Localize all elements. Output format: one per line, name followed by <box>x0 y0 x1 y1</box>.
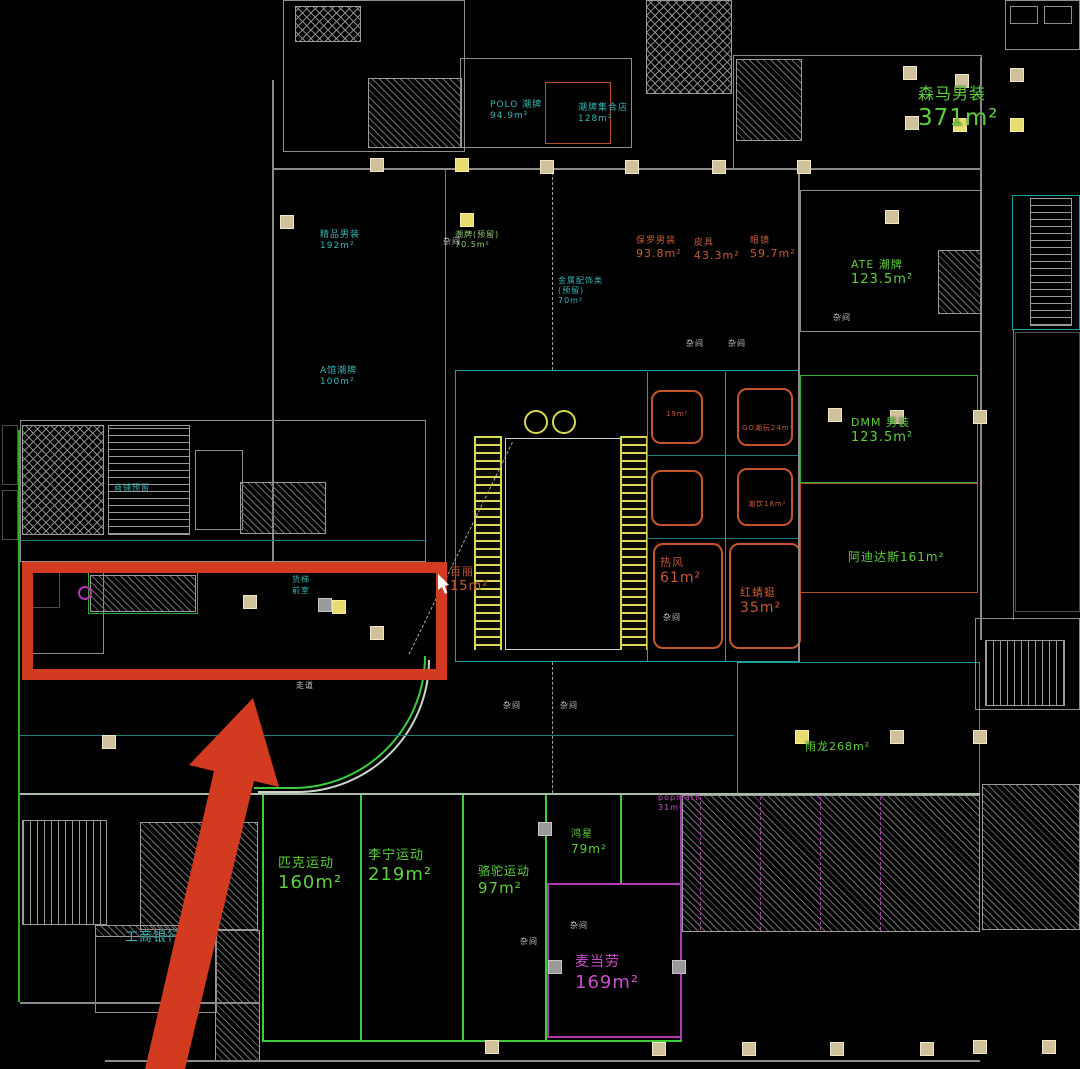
wall-outline <box>283 0 465 152</box>
escalator <box>474 436 502 650</box>
corridor-line <box>20 735 734 736</box>
store-label-text: 123.5m² <box>851 430 913 446</box>
column-marker <box>920 1042 934 1056</box>
wall-outline-cyan <box>1012 195 1080 330</box>
kiosk-outline <box>651 390 703 444</box>
store-label-yanjing: 眼镜59.7m² <box>750 236 796 261</box>
store-label-text: POLO 潮牌 <box>490 100 542 111</box>
wall-outline <box>460 58 632 148</box>
wall-outline <box>2 425 18 485</box>
column-marker <box>102 735 116 749</box>
store-label-kiosk3: 潮饮18m² <box>748 500 787 509</box>
store-label-text: 阿迪达斯161m² <box>848 550 944 565</box>
kiosk-outline <box>651 470 703 526</box>
store-label-dmm: DMM 男装123.5m² <box>851 416 913 446</box>
store-label-text: 219m² <box>368 864 432 887</box>
store-label-text: 31m² <box>658 803 699 813</box>
column-marker <box>903 66 917 80</box>
store-label-text: 19m² <box>666 410 689 419</box>
store-label-text: 160m² <box>278 872 342 895</box>
store-label-text: 97m² <box>478 879 530 898</box>
hatched-block <box>982 784 1080 930</box>
store-label-baili: 百丽15m² <box>450 565 488 595</box>
stair-core <box>1030 198 1072 326</box>
column-marker <box>905 116 919 130</box>
store-label-text: 百丽 <box>450 565 488 579</box>
wall-line-cyan <box>1013 330 1014 620</box>
store-label-senma: 森马男装371m² <box>918 84 999 133</box>
store-label-luotuo: 骆驼运动97m² <box>478 864 530 898</box>
store-label-text: GO潮玩24m² <box>742 424 793 433</box>
store-label-hongxing: 鸿星79m² <box>571 829 607 857</box>
store-label-text: 79m² <box>571 842 607 857</box>
store-label-text: 94.9m² <box>490 111 542 122</box>
kiosk-outline <box>737 388 793 446</box>
column-marker <box>540 160 554 174</box>
hatched-block <box>140 822 258 930</box>
kiosk-outline <box>737 468 793 526</box>
room-label: 杂间 <box>686 338 704 349</box>
column-marker <box>1042 1040 1056 1054</box>
hatched-block <box>682 795 980 932</box>
wall-outline-cyan <box>455 370 800 662</box>
store-label-text: 红蜻蜓 <box>740 586 781 600</box>
store-label-text: 眼镜 <box>750 236 796 247</box>
store-label-text: 123.5m² <box>851 272 913 288</box>
room-label: 杂间 <box>570 920 588 931</box>
store-label-text: 59.7m² <box>750 247 796 261</box>
store-label-lining: 李宁运动219m² <box>368 848 432 887</box>
store-label-text: DMM 男装 <box>851 416 913 430</box>
store-label-text: 骆驼运动 <box>478 864 530 879</box>
room-label: 杂间 <box>443 236 461 247</box>
wall-outline-cyan <box>737 662 980 795</box>
hatched-block <box>95 925 217 937</box>
store-label-baoluo: 保罗男装93.8m² <box>636 236 682 261</box>
store-label-ate: ATE 潮牌123.5m² <box>851 258 913 288</box>
hatched-block <box>368 78 462 148</box>
store-label-text: 金属配饰类 <box>558 276 603 286</box>
wall-outline <box>1044 6 1072 24</box>
room-label: 杂间 <box>520 936 538 947</box>
floor-plan-canvas: 森马男装371m²POLO 潮牌94.9m²潮牌集合店128m²精品男装192m… <box>0 0 1080 1069</box>
store-label-popmart: popmart31m² <box>658 793 699 813</box>
store-label-text: 精品男装 <box>320 230 360 241</box>
atrium-void <box>505 438 623 650</box>
store-label-text: 工商银行 <box>125 930 181 946</box>
wall-line <box>272 80 274 564</box>
boh-line-dashed <box>880 797 881 930</box>
store-label-text: (预留) <box>558 286 603 296</box>
store-label-jinshu: 金属配饰类(预留)70m² <box>558 276 603 306</box>
boundary-line-green <box>18 430 20 1002</box>
store-label-pike: 匹克运动160m² <box>278 856 342 895</box>
store-label-text: 371m² <box>918 104 999 133</box>
stair-core <box>108 425 190 535</box>
store-label-text: 35m² <box>740 600 781 618</box>
column-marker <box>742 1042 756 1056</box>
corridor-line <box>648 455 800 456</box>
store-label-kiosk2: GO潮玩24m² <box>742 424 793 433</box>
tenant-boundary-orange <box>800 483 978 593</box>
column-marker <box>712 160 726 174</box>
wall-line <box>798 170 800 662</box>
fountain-circle <box>552 410 576 434</box>
tenant-line-green <box>462 795 464 1042</box>
wall-outline <box>800 190 982 332</box>
hatched-block <box>736 59 802 141</box>
wall-outline <box>975 618 1080 710</box>
store-label-text: 麦当劳 <box>575 954 639 972</box>
highlight-arrow <box>0 0 1080 1069</box>
column-marker <box>973 730 987 744</box>
room-label: 商铺预留 <box>114 482 150 493</box>
tenant-line-magenta <box>680 795 682 1040</box>
column-marker <box>485 1040 499 1054</box>
store-label-text: 70.5m² <box>455 240 499 250</box>
wall-line <box>272 168 982 170</box>
tenant-line-green <box>620 795 622 885</box>
room-label: 杂间 <box>833 312 851 323</box>
column-marker <box>953 118 967 132</box>
column-marker <box>460 213 474 227</box>
column-marker <box>455 158 469 172</box>
store-label-text: 潮牌(预留) <box>455 230 499 240</box>
fountain-circle <box>524 410 548 434</box>
column-marker <box>672 960 686 974</box>
store-label-text: 61m² <box>660 570 701 588</box>
centerline-dashed <box>552 662 553 793</box>
boundary-line <box>20 793 980 795</box>
tenant-line-green <box>262 795 264 1042</box>
column-marker <box>548 960 562 974</box>
stair-core <box>22 820 107 925</box>
room-label: 杂间 <box>728 338 746 349</box>
column-marker <box>955 74 969 88</box>
store-label-kiosk1: 19m² <box>666 410 689 419</box>
wall-outline <box>1010 6 1038 24</box>
store-label-text: 皮具 <box>694 238 740 249</box>
tenant-boundary-green <box>800 375 978 483</box>
wall-line <box>980 57 982 640</box>
centerline-dashed <box>552 172 553 370</box>
store-label-text: 潮饮18m² <box>748 500 787 509</box>
column-marker <box>370 158 384 172</box>
store-label-adidas: 阿迪达斯161m² <box>848 550 944 565</box>
boh-line-dashed <box>820 797 821 930</box>
store-label-text: 李宁运动 <box>368 848 432 864</box>
store-label-text: 雨龙268m² <box>805 740 870 754</box>
column-marker <box>830 1042 844 1056</box>
column-marker <box>795 730 809 744</box>
store-label-text: 保罗男装 <box>636 236 682 247</box>
hatched-block <box>240 482 326 534</box>
highlight-rectangle <box>22 562 447 680</box>
tenant-line-green <box>545 795 547 1042</box>
room-label: 杂间 <box>560 700 578 711</box>
escalator <box>620 436 648 650</box>
wall-line-cyan <box>725 372 726 662</box>
wall-outline <box>1015 332 1080 612</box>
wall-outline <box>20 420 426 562</box>
store-label-text: 169m² <box>575 972 639 995</box>
store-label-text: 森马男装 <box>918 84 999 104</box>
column-marker <box>625 160 639 174</box>
wall-line-cyan <box>647 372 648 662</box>
tenant-line-green <box>262 1040 682 1042</box>
tenant-boundary-magenta <box>547 883 682 1038</box>
store-label-text: 匹克运动 <box>278 856 342 872</box>
column-marker <box>1010 68 1024 82</box>
column-marker <box>890 730 904 744</box>
boh-line-dashed <box>760 797 761 930</box>
elevator-core <box>22 425 104 535</box>
room-label: 杂间 <box>503 700 521 711</box>
column-marker <box>885 210 899 224</box>
store-label-text: 15m² <box>450 579 488 595</box>
store-label-text: 93.8m² <box>636 247 682 261</box>
store-label-hongqingting: 红蜻蜓35m² <box>740 586 781 617</box>
boh-line-dashed <box>700 797 701 930</box>
corridor-line <box>648 538 800 539</box>
column-marker <box>890 410 904 424</box>
store-label-text: popmart <box>658 793 699 803</box>
column-marker <box>797 160 811 174</box>
store-label-icbc: 工商银行 <box>125 930 181 946</box>
column-marker <box>1010 118 1024 132</box>
tenant-line-green <box>360 795 362 1042</box>
column-marker <box>538 822 552 836</box>
wall-outline <box>2 490 18 540</box>
column-marker <box>652 1042 666 1056</box>
column-marker <box>973 410 987 424</box>
kiosk-outline <box>729 543 801 649</box>
corridor-line <box>20 540 426 541</box>
wall-line <box>105 1060 980 1062</box>
store-label-text: 鸿星 <box>571 829 607 842</box>
store-label-piju: 皮具43.3m² <box>694 238 740 263</box>
hatched-block <box>215 930 260 1062</box>
store-label-yulong: 雨龙268m² <box>805 740 870 754</box>
store-label-text: 128m² <box>578 114 628 125</box>
elevator-core <box>295 6 361 42</box>
column-marker <box>280 215 294 229</box>
store-label-text: 潮牌集合店 <box>578 103 628 114</box>
store-label-mcdonalds: 麦当劳169m² <box>575 954 639 994</box>
column-marker <box>973 1040 987 1054</box>
store-label-polo: POLO 潮牌94.9m² <box>490 100 542 123</box>
wall-line <box>20 1002 260 1004</box>
stair-core <box>985 640 1065 706</box>
room-label: 走道 <box>296 680 314 691</box>
wall-outline <box>95 925 217 1013</box>
store-label-text: 70m² <box>558 296 603 306</box>
store-label-aguan: A馆潮牌100m² <box>320 366 357 389</box>
store-label-chaopai705: 潮牌(预留)70.5m² <box>455 230 499 250</box>
column-marker <box>828 408 842 422</box>
kiosk-outline <box>653 543 723 649</box>
wall-outline <box>733 55 982 170</box>
hatched-block <box>938 250 982 314</box>
wall-line-cyan <box>445 170 446 562</box>
wall-outline <box>195 450 243 530</box>
store-label-mens192: 精品男装192m² <box>320 230 360 253</box>
store-label-text: 43.3m² <box>694 249 740 263</box>
store-label-text: A馆潮牌 <box>320 366 357 377</box>
store-label-refeng: 热风61m² <box>660 556 701 587</box>
wall-outline <box>1005 0 1080 50</box>
store-label-text: 192m² <box>320 241 360 252</box>
structure-layer <box>0 0 1080 1069</box>
labels-layer: 森马男装371m²POLO 潮牌94.9m²潮牌集合店128m²精品男装192m… <box>0 0 1080 1069</box>
tenant-boundary-orange <box>545 82 611 144</box>
elevator-core <box>646 0 732 94</box>
store-label-text: 100m² <box>320 377 357 388</box>
store-label-text: ATE 潮牌 <box>851 258 913 272</box>
store-label-text: 热风 <box>660 556 701 570</box>
store-label-jihe: 潮牌集合店128m² <box>578 103 628 126</box>
room-label: 杂间 <box>663 612 681 623</box>
